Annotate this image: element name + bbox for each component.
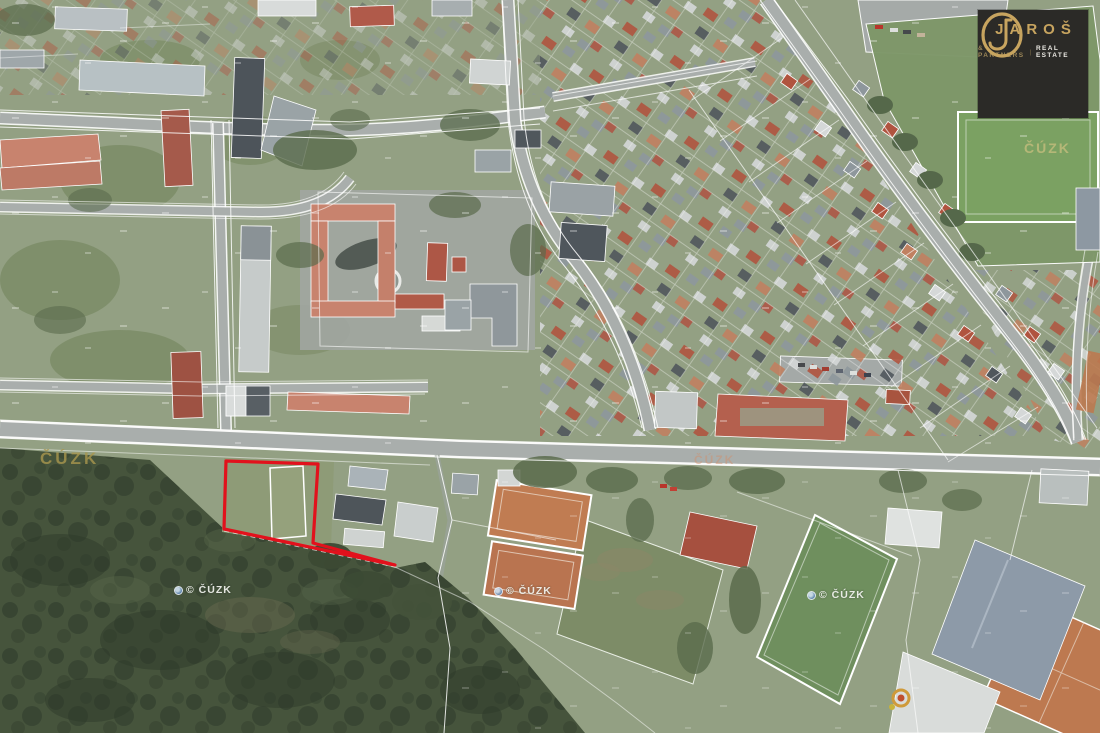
map-scene xyxy=(0,0,1100,733)
aerial-cadastral-map: ČÚZK ČÚZK ČÚZK © ČÚZK © ČÚZK © ČÚZK JARO… xyxy=(0,0,1100,733)
tagline-realestate: REAL ESTATE xyxy=(1036,45,1088,59)
tagline-separator: | xyxy=(1030,49,1033,56)
inner-parcel-outline xyxy=(270,466,306,539)
brand-logo: JAROŠ & PARTNERS | REAL ESTATE xyxy=(978,10,1088,118)
